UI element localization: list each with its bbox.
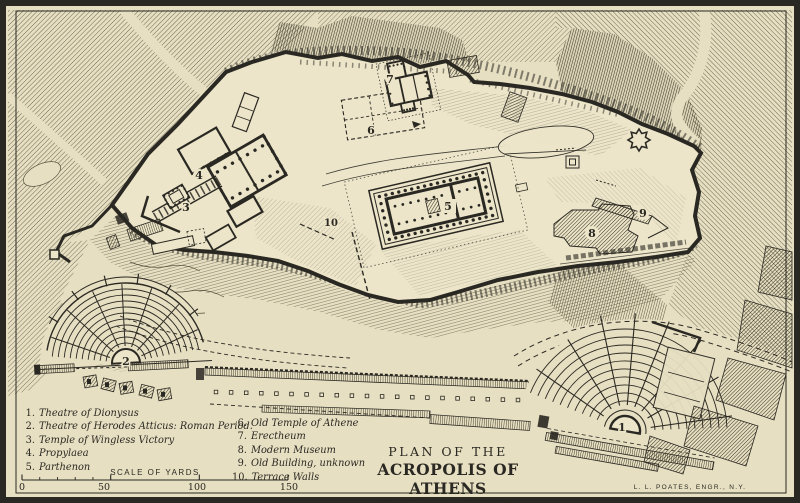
marker-9: 9 bbox=[639, 207, 647, 220]
marker-4: 4 bbox=[195, 169, 203, 182]
marker-1: 1 bbox=[618, 421, 626, 434]
title-line2: ACROPOLIS OF ATHENS bbox=[343, 460, 553, 498]
title-block: PLAN OF THE ACROPOLIS OF ATHENS (BOETTIC… bbox=[343, 444, 553, 503]
scale-tick-50: 50 bbox=[98, 482, 110, 493]
marker-5: 5 bbox=[444, 200, 452, 213]
marker-8: 8 bbox=[588, 227, 596, 240]
legend-item: 4.Propylaea bbox=[20, 447, 253, 460]
marker-7: 7 bbox=[386, 73, 394, 86]
star-bastion bbox=[628, 129, 650, 151]
legend-item: 7.Erectheum bbox=[232, 430, 365, 443]
marker-3: 3 bbox=[182, 201, 190, 214]
legend-item: 1.Theatre of Dionysus bbox=[20, 407, 253, 420]
engraver-credit: L. L. POATES, ENGR., N.Y. bbox=[600, 484, 780, 491]
scale-tick-100: 100 bbox=[188, 482, 206, 493]
marker-6: 6 bbox=[367, 124, 375, 137]
legend-item: 2.Theatre of Herodes Atticus: Roman Peri… bbox=[20, 420, 253, 433]
scale-label: SCALE OF YARDS bbox=[75, 468, 235, 477]
acropolis-map: 1 2 3 4 5 6 7 8 9 10 1.Theatre of Dionys… bbox=[0, 0, 800, 503]
scale-tick-0: 0 bbox=[19, 482, 25, 493]
marker-10: 10 bbox=[324, 218, 338, 229]
legend-item: 3.Temple of Wingless Victory bbox=[20, 434, 253, 447]
legend-left-column: 1.Theatre of Dionysus 2.Theatre of Herod… bbox=[20, 407, 253, 474]
scale-tick-150: 150 bbox=[280, 482, 298, 493]
legend-item: 6.Old Temple of Athene bbox=[232, 417, 365, 430]
marker-2: 2 bbox=[122, 355, 130, 368]
title-line1: PLAN OF THE bbox=[343, 444, 553, 459]
